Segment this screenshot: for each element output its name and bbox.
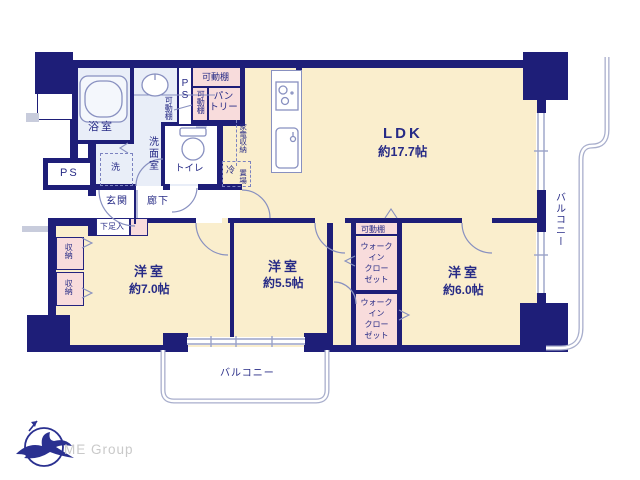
wic-north-label: ウォーク イン クロー ゼット — [356, 241, 397, 285]
shoe-cabinet-label: 下足入 — [100, 222, 124, 231]
bedroom-west-label: 洋室 — [134, 265, 166, 280]
wic-south-line1: ウォーク — [356, 297, 397, 308]
bathtub — [80, 76, 127, 122]
fridge-label: 冷 — [226, 165, 235, 175]
sink-tap — [291, 137, 296, 142]
ldk-area-label: 約17.7帖 — [378, 145, 427, 159]
bedroom-center-label: 洋室 — [268, 260, 300, 275]
bedroom-east-door-arc — [462, 223, 492, 253]
bedroom-east-area-label: 約6.0帖 — [443, 284, 484, 298]
appliance-storage-label: 家電収納 置場 — [238, 123, 247, 167]
pantry-label-line1: パン — [207, 91, 240, 102]
hallway-label: 廊下 — [147, 196, 169, 208]
toilet-tank — [180, 128, 206, 136]
toilet-label: トイレ — [175, 164, 204, 175]
linework-layer — [0, 0, 640, 480]
bedroom-east-label: 洋室 — [448, 266, 480, 281]
wic-south-label: ウォーク イン クロー ゼット — [356, 297, 397, 341]
washer-label: 洗 — [111, 162, 120, 172]
shelf-opening-marker — [385, 209, 397, 218]
wic-north-line4: ゼット — [356, 274, 397, 285]
wic-north-opening-marker — [345, 256, 355, 266]
bathroom-opening-marker — [120, 143, 128, 153]
pipe-space-left-label: PS — [60, 167, 79, 180]
storage-upper-label: 収納 — [64, 243, 73, 259]
appliance-storage-col1: 家電収納 — [239, 123, 248, 153]
ldk-door-arc — [242, 190, 270, 218]
balcony-south-label: バルコニー — [220, 368, 275, 380]
stove-burner-2 — [282, 98, 289, 105]
window-east-bedroom — [534, 232, 548, 293]
wic-north-line1: ウォーク — [356, 241, 397, 252]
bedroom-center-door-arc — [315, 223, 345, 253]
storage-lower-opening-marker — [82, 288, 92, 298]
washroom-label: 洗面室 — [146, 136, 158, 172]
bedroom-west-area-label: 約7.0帖 — [129, 283, 170, 297]
pantry-label: パン トリー — [207, 91, 240, 113]
wic-south-opening-marker — [399, 310, 409, 320]
toilet-door-arc — [172, 188, 197, 212]
toilet-bowl — [182, 138, 204, 160]
stove — [276, 82, 298, 110]
shelf-pointer-line — [174, 105, 192, 110]
balcony-east-label: バルコニー — [553, 192, 565, 247]
shelf-pantry-label: 可動棚 — [196, 90, 205, 114]
kitchen-sink — [276, 128, 298, 168]
wic-south-line2: イン — [356, 308, 397, 319]
brand-name: ME Group — [64, 442, 134, 458]
wic-south-line4: ゼット — [356, 330, 397, 341]
wic-north-line2: イン — [356, 252, 397, 263]
storage-lower-label: 収納 — [64, 279, 73, 295]
window-east-ldk — [534, 113, 548, 190]
pantry-label-line2: トリー — [207, 102, 240, 113]
window-south — [187, 336, 305, 347]
appliance-storage-col2: 置場 — [239, 169, 248, 184]
shelf-washroom-label: 可動棚 — [164, 96, 173, 120]
shelf-wic-label: 可動棚 — [361, 225, 385, 234]
wic-south-line3: クロー — [356, 319, 397, 330]
shelf-top-label: 可動棚 — [202, 72, 229, 82]
bedroom-center-area-label: 約5.5帖 — [263, 277, 304, 291]
ldk-label: LDK — [383, 125, 423, 142]
entrance-label: 玄関 — [106, 196, 128, 208]
bathroom-label: 浴室 — [88, 121, 114, 134]
wic-north-line3: クロー — [356, 263, 397, 274]
wic-door-arc — [334, 282, 356, 304]
stove-knob — [291, 92, 293, 94]
floorplan-canvas: 浴室 洗面室 可動棚 洗 トイレ PS 可動棚 可動棚 パン トリー 家電収納 … — [0, 0, 640, 480]
stove-burner-1 — [279, 86, 287, 94]
storage-upper-opening-marker — [82, 238, 92, 248]
bedroom-west-door-arc — [196, 223, 228, 255]
pipe-space-top-label: PS — [179, 78, 191, 102]
